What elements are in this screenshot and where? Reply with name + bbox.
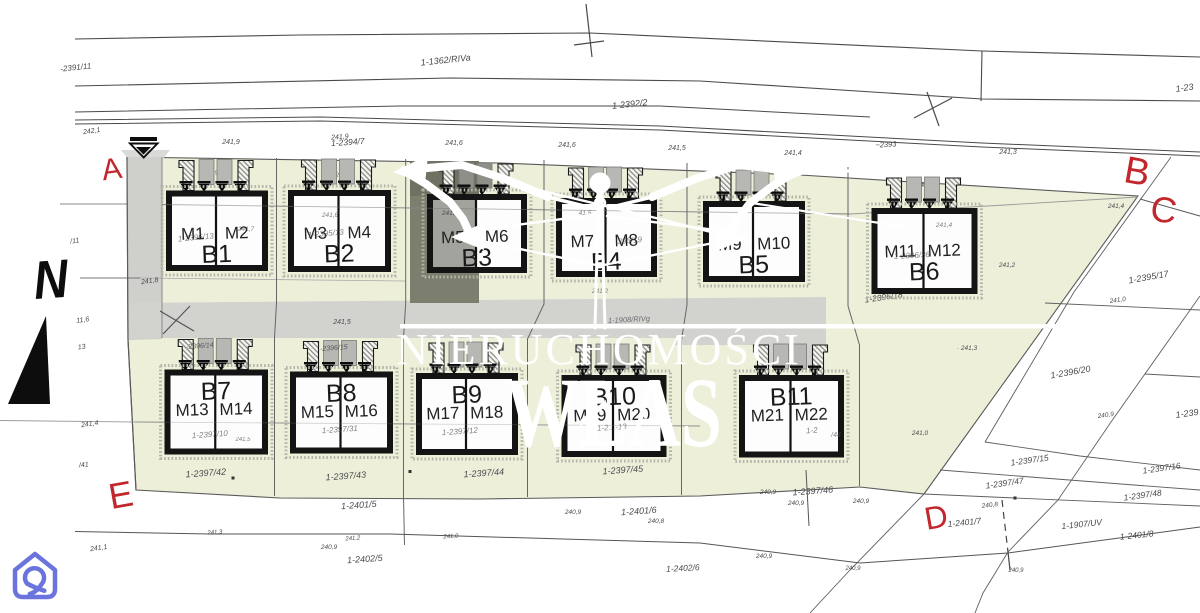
svg-text:241,2: 241,2 — [344, 535, 361, 542]
svg-text:240,9: 240,9 — [320, 544, 338, 551]
svg-text:241,5: 241,5 — [234, 437, 251, 443]
svg-text:1-2: 1-2 — [806, 426, 819, 436]
svg-text:241,5: 241,5 — [332, 319, 351, 326]
svg-text:240,9: 240,9 — [1007, 568, 1024, 574]
svg-text:241,6: 241,6 — [444, 140, 463, 147]
svg-text:B9: B9 — [451, 380, 483, 409]
svg-text:B7: B7 — [200, 377, 232, 406]
svg-text:/41: /41 — [78, 462, 90, 470]
svg-text:241,9: 241,9 — [221, 139, 240, 146]
svg-text:241,4: 241,4 — [783, 150, 802, 157]
svg-text:· 241,3: · 241,3 — [957, 345, 978, 352]
svg-text:241,2: 241,2 — [998, 262, 1016, 269]
svg-text:241,3: 241,3 — [998, 149, 1017, 156]
svg-text:240,9: 240,9 — [759, 489, 777, 496]
svg-text:241,2: 241,2 — [591, 288, 609, 295]
svg-text:B11: B11 — [769, 382, 813, 411]
svg-text:241,0: 241,0 — [911, 430, 929, 437]
svg-text:240,9: 240,9 — [564, 509, 582, 516]
svg-text:240,9: 240,9 — [755, 553, 773, 560]
svg-text:241,6: 241,6 — [321, 212, 339, 219]
svg-text:1-2396/36: 1-2396/36 — [894, 250, 931, 261]
svg-text:240,9: 240,9 — [787, 500, 805, 507]
svg-text:WŁAS: WŁAS — [505, 357, 721, 468]
svg-text:/44: /44 — [830, 432, 841, 439]
svg-text:241,4: 241,4 — [1107, 203, 1125, 210]
svg-text:B1: B1 — [201, 240, 233, 269]
svg-text:B3: B3 — [461, 243, 493, 272]
svg-text:241,0: 241,0 — [442, 533, 459, 540]
svg-text:240,8: 240,8 — [647, 518, 665, 525]
svg-text:241,7: 241,7 — [237, 226, 255, 233]
svg-text:/11: /11 — [69, 237, 80, 245]
svg-text:B6: B6 — [908, 257, 940, 286]
svg-text:241,6: 241,6 — [557, 142, 576, 149]
svg-text:N: N — [32, 248, 72, 311]
svg-text:B8: B8 — [325, 379, 357, 408]
svg-text:241,4: 241,4 — [935, 222, 953, 229]
svg-text:241,5: 241,5 — [667, 145, 686, 152]
svg-text:241,3: 241,3 — [206, 529, 223, 536]
svg-text:13: 13 — [77, 343, 86, 351]
svg-text:B2: B2 — [323, 239, 355, 268]
svg-text:~2393: ~2393 — [875, 139, 897, 149]
svg-text:B5: B5 — [738, 250, 770, 279]
svg-text:1-2402/6: 1-2402/6 — [666, 562, 700, 574]
svg-text:240,9: 240,9 — [844, 566, 861, 572]
svg-text:240,9: 240,9 — [852, 498, 870, 505]
